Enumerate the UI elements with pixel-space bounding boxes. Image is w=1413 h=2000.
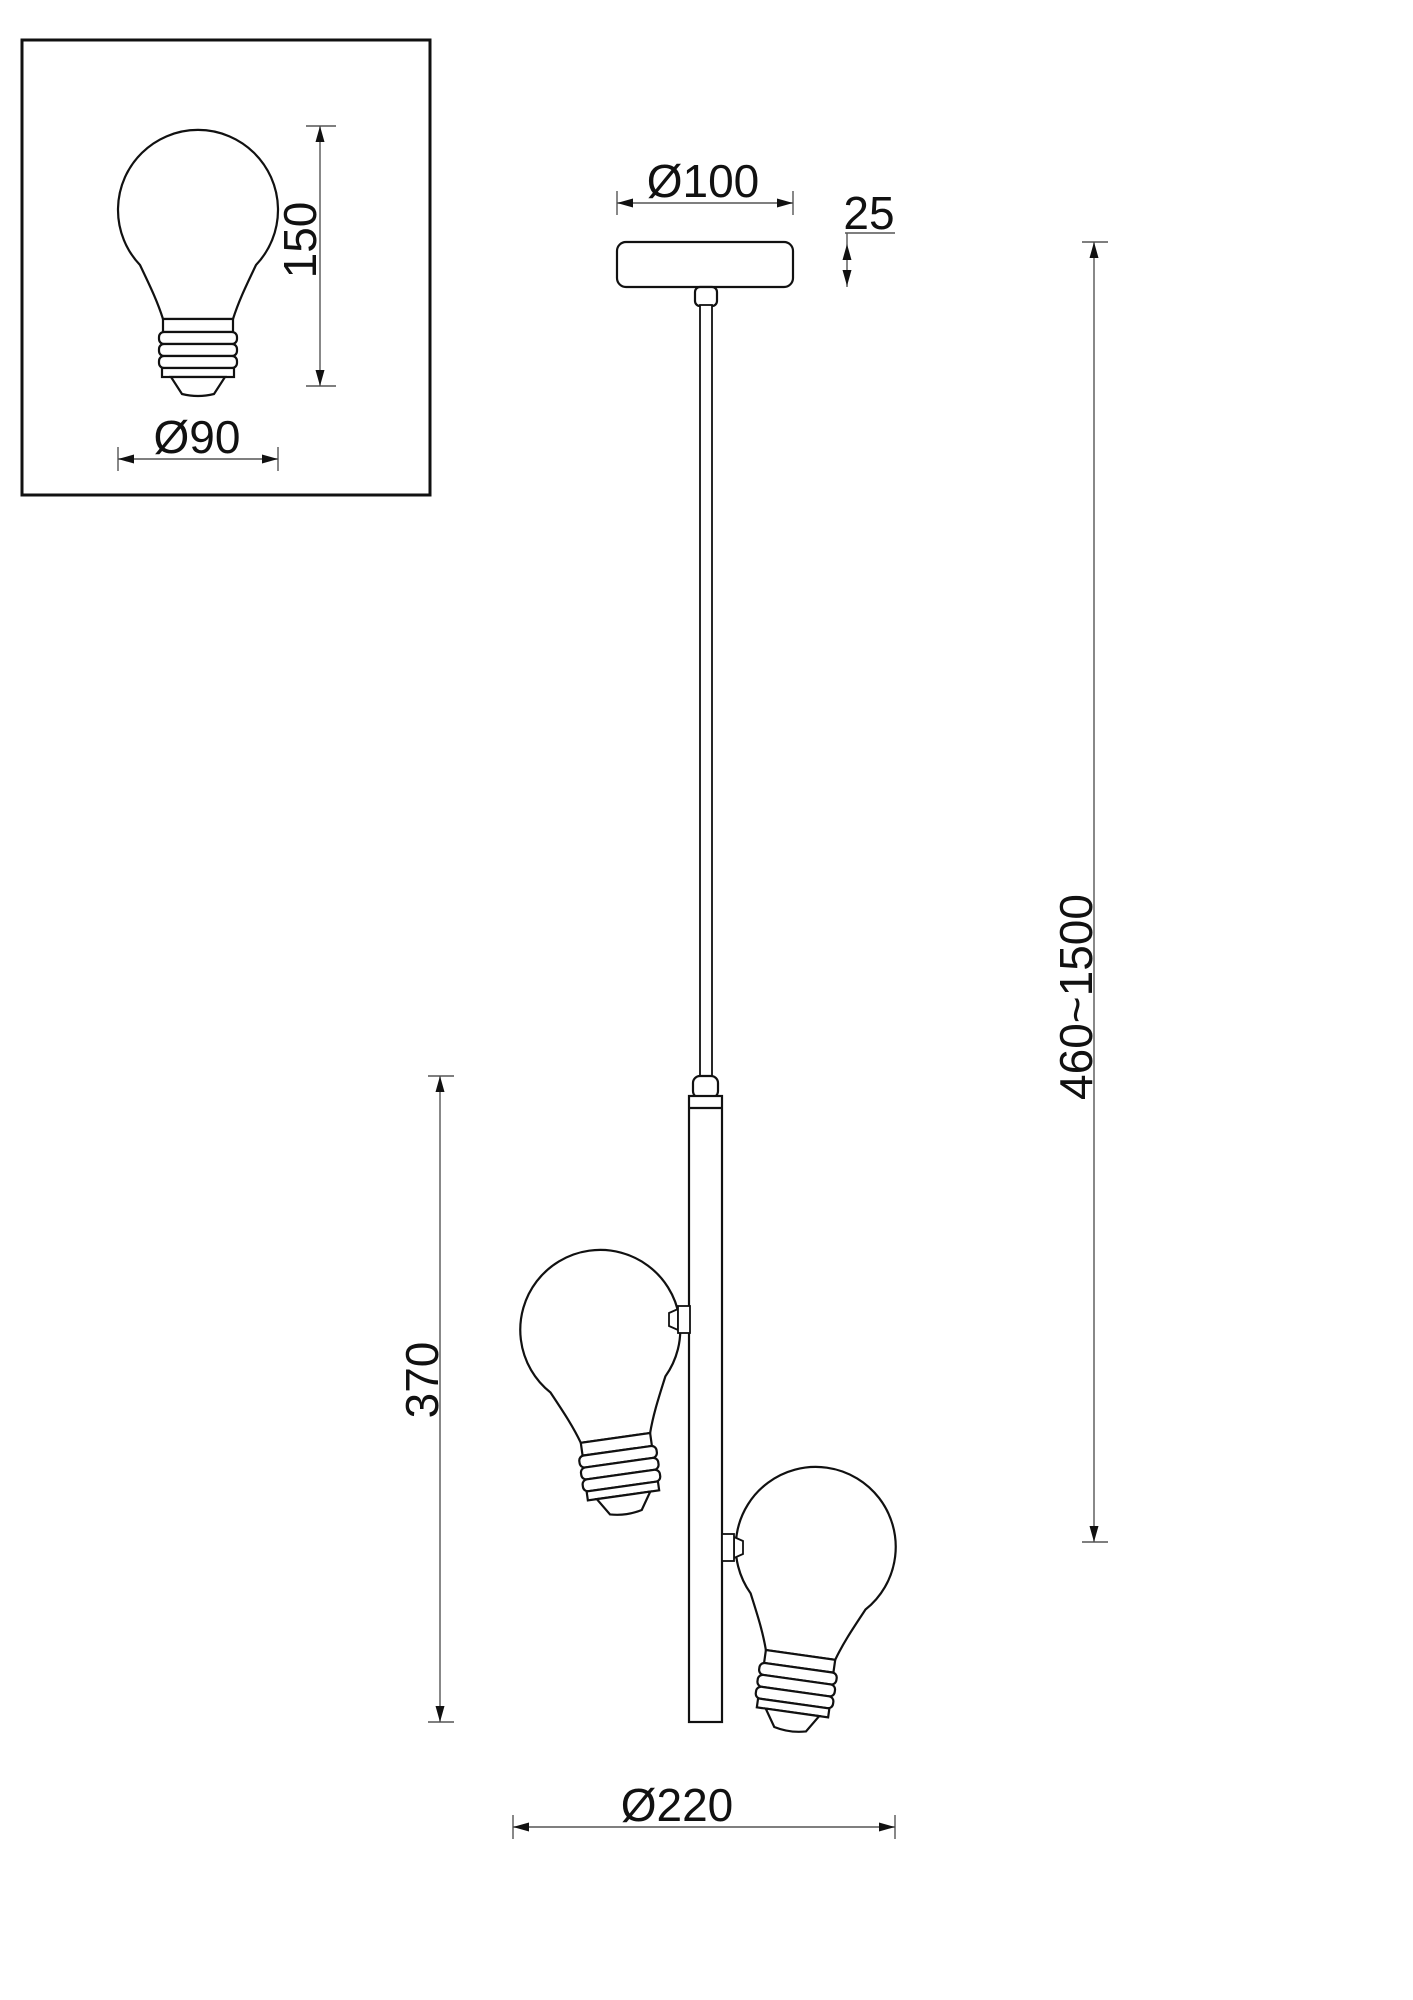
dim-bar-height: 370 [396, 1076, 454, 1722]
suspension-rod [700, 305, 712, 1078]
dim-canopy-diameter: Ø100 [617, 155, 793, 215]
rod-bar-coupling [693, 1076, 718, 1098]
canopy-diameter-label: Ø100 [647, 155, 760, 207]
right-bulb-outline [711, 1457, 906, 1743]
dim-suspension-range: 460~1500 [1050, 242, 1108, 1542]
bar-height-label: 370 [396, 1342, 448, 1419]
bulb-height-label: 150 [274, 202, 326, 279]
pendant-lamp-drawing: 150 Ø90 Ø100 25 [0, 0, 1413, 2000]
bulb-detail-inset: 150 Ø90 [22, 40, 430, 495]
bulb-diameter-label: Ø90 [154, 411, 241, 463]
drawing-page: 150 Ø90 Ø100 25 [0, 0, 1413, 2000]
canopy-stem-fitting [695, 287, 717, 306]
pendant-fixture: Ø100 25 [396, 155, 1108, 1839]
lamp-bar [689, 1096, 722, 1722]
left-bulb-outline [510, 1240, 705, 1526]
dim-overall-diameter: Ø220 [513, 1779, 895, 1839]
overall-diameter-label: Ø220 [621, 1779, 734, 1831]
suspension-range-label: 460~1500 [1050, 894, 1102, 1100]
canopy-height-label: 25 [843, 187, 894, 239]
ceiling-canopy [617, 242, 793, 287]
dim-canopy-height: 25 [843, 187, 896, 287]
